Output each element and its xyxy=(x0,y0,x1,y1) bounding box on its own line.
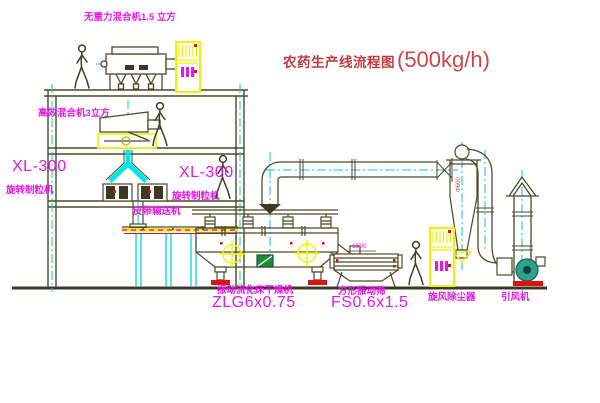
label-fan: 引风机 xyxy=(501,293,530,303)
page-title: 农药生产线流程图 (500kg/h) xyxy=(283,47,490,73)
control-cabinet-1 xyxy=(176,42,200,92)
dryer-feet xyxy=(211,267,327,285)
label-granulator-name-left: 旋转制粒机 xyxy=(6,186,54,196)
induced-draft-fan xyxy=(497,257,545,286)
label-granulator-name-right: 旋转制粒机 xyxy=(172,192,220,202)
vibrating-sieve xyxy=(330,246,402,287)
title-capacity: (500kg/h) xyxy=(397,47,490,73)
label-granulator-model-right: XL-300 xyxy=(179,165,234,181)
label-sieve-model: FS0.6x1.5 xyxy=(331,295,408,311)
gravity-free-mixer xyxy=(101,47,180,90)
label-gravity-free-mixer: 无重力混合机1.5 立方 xyxy=(84,13,176,23)
label-dryer-model: ZLG6x0.75 xyxy=(212,295,296,311)
brand-logo xyxy=(257,255,273,267)
label-granulator-model-left: XL-300 xyxy=(12,159,67,175)
spring-hangers xyxy=(205,214,331,228)
title-text: 农药生产线流程图 xyxy=(283,51,395,71)
pesticide-production-line-diagram: 农药生产线流程图 (500kg/h) 无重力混合机1.5 立方 高效混合机3立方… xyxy=(0,0,600,403)
fluid-bed-dryer xyxy=(192,210,356,285)
granulators xyxy=(103,184,167,201)
indicator-bars xyxy=(181,67,194,77)
dim-sieve-length: 1500 xyxy=(352,244,366,251)
cyclone-outlet-duct xyxy=(466,149,514,272)
label-cyclone: 旋风除尘器 xyxy=(428,293,476,303)
label-belt-conveyor: 皮带输送机 xyxy=(133,207,181,217)
dryer-exhaust-duct xyxy=(259,158,452,214)
person-figure xyxy=(409,242,423,285)
person-figure xyxy=(75,45,89,88)
dim-cyclone-diameter: Φ600 xyxy=(456,177,462,192)
indicator-bars xyxy=(435,261,448,271)
conveyor-legs xyxy=(136,234,196,286)
control-cabinet-2 xyxy=(430,228,454,286)
label-high-efficiency-mixer: 高效混合机3立方 xyxy=(38,109,110,119)
